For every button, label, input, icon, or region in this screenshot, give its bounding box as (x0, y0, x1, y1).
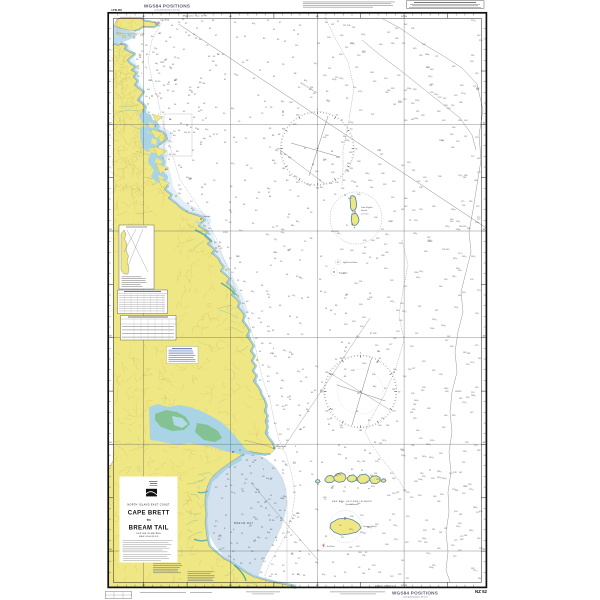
svg-text:NORTH ISLAND EAST COAST: NORTH ISLAND EAST COAST (127, 504, 170, 507)
svg-text:DEPTHS IN METRES: DEPTHS IN METRES (137, 533, 162, 535)
svg-text:Poor Knights: Poor Knights (361, 206, 372, 209)
svg-text:175°E: 175°E (401, 16, 408, 18)
svg-text:TO: TO (147, 518, 152, 522)
svg-text:High Peak Rocks: High Peak Rocks (343, 262, 358, 264)
svg-text:BREAM BAY: BREAM BAY (234, 522, 254, 525)
svg-text:Cape Brett: Cape Brett (160, 19, 170, 22)
svg-text:WGS84 POSITIONS: WGS84 POSITIONS (392, 591, 438, 596)
svg-text:BREAM TAIL: BREAM TAIL (129, 526, 169, 532)
svg-text:Magnetic Var 19°E: Magnetic Var 19°E (183, 15, 207, 18)
svg-text:CAPE BRETT: CAPE BRETT (128, 511, 170, 517)
svg-text:Islands: Islands (361, 210, 367, 212)
svg-text:can be plotted directly on thi: can be plotted directly on this chart (154, 9, 181, 12)
svg-text:Bream Head: Bream Head (276, 446, 287, 448)
svg-text:Depths in Metres: Depths in Metres (375, 584, 395, 587)
svg-text:HEN AND CHICKEN ISLANDS: HEN AND CHICKEN ISLANDS (332, 500, 372, 503)
svg-text:NZ 52: NZ 52 (475, 589, 488, 594)
svg-text:Sail Rock: Sail Rock (327, 546, 335, 548)
svg-text:Tutukaka: Tutukaka (203, 215, 210, 218)
svg-text:LTD ZN: LTD ZN (112, 8, 122, 12)
svg-text:175°E: 175°E (401, 585, 408, 587)
svg-text:WGS84 POSITIONS: WGS84 POSITIONS (144, 4, 190, 9)
